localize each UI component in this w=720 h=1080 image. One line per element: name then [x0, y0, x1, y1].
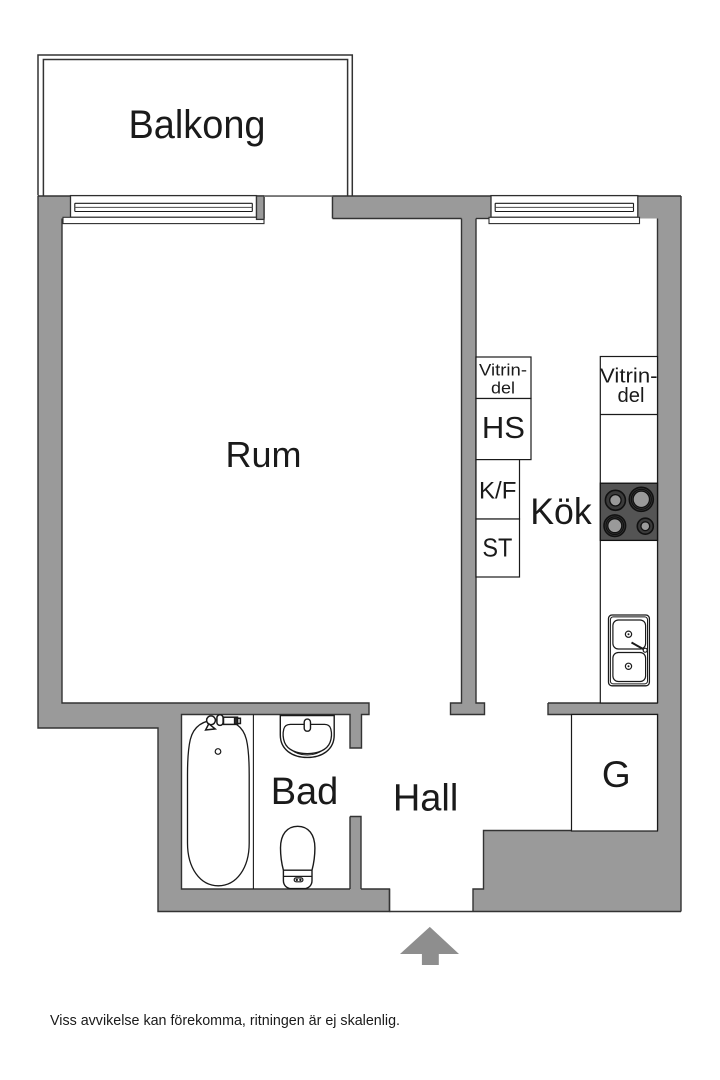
svg-text:K/F: K/F — [479, 478, 517, 505]
svg-text:Hall: Hall — [393, 778, 458, 820]
svg-text:Bad: Bad — [271, 771, 339, 813]
svg-text:ST: ST — [482, 533, 512, 563]
svg-text:HS: HS — [482, 410, 525, 445]
svg-text:Balkong: Balkong — [129, 103, 266, 147]
svg-text:G: G — [602, 754, 631, 795]
svg-text:Viss avvikelse kan förekomma,: Viss avvikelse kan förekomma, ritningen … — [50, 1012, 400, 1029]
svg-text:Rum: Rum — [225, 434, 301, 475]
svg-text:del: del — [491, 379, 515, 397]
svg-text:del: del — [618, 385, 645, 407]
svg-text:Vitrin-: Vitrin- — [479, 362, 527, 380]
svg-text:Kök: Kök — [530, 491, 592, 532]
